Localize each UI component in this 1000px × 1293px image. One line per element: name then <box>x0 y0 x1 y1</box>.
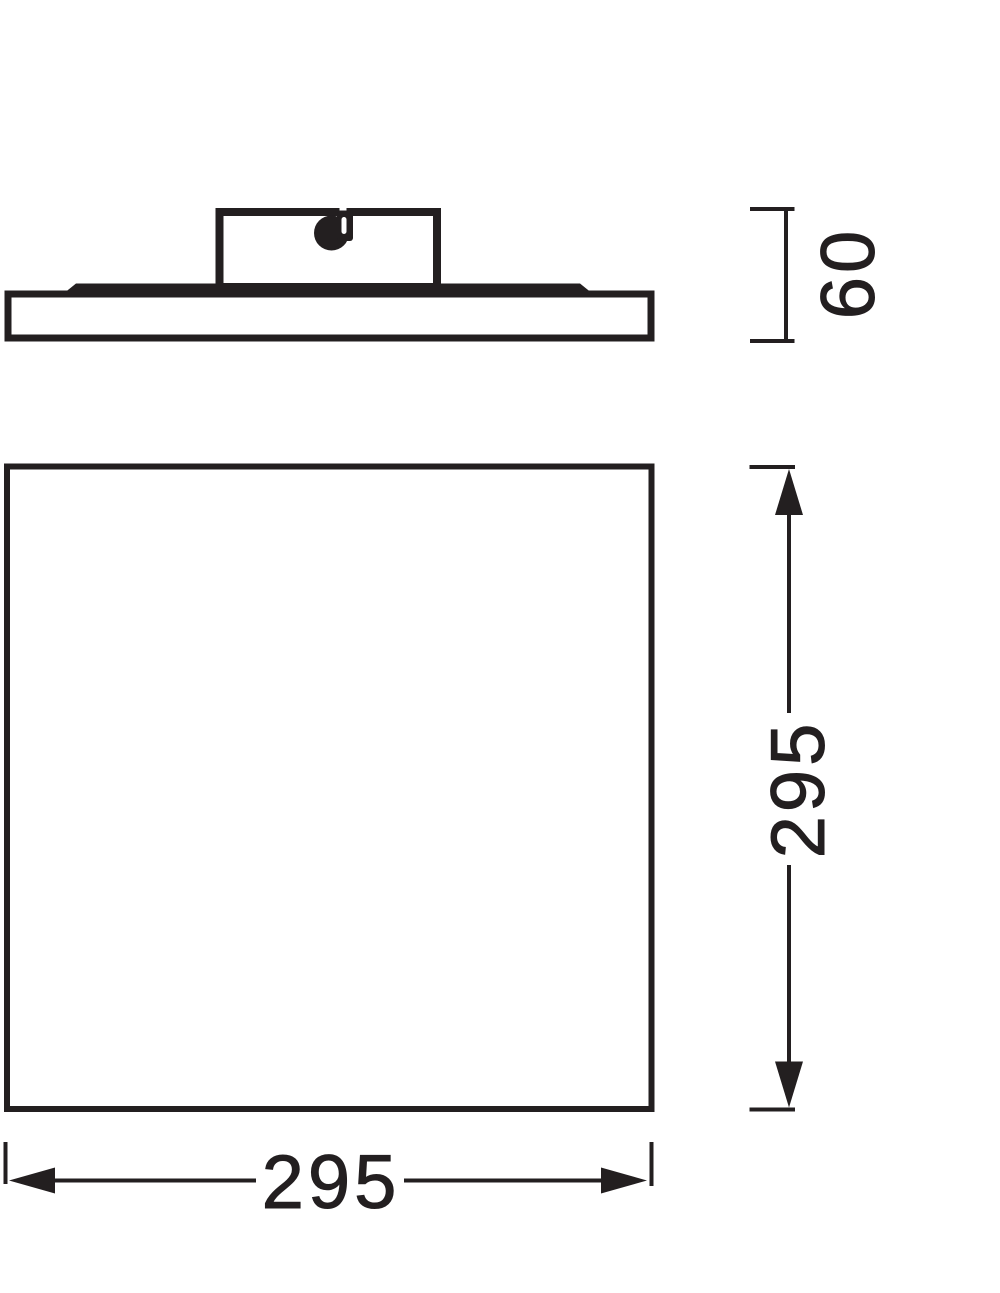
svg-text:60: 60 <box>806 227 891 320</box>
svg-text:295: 295 <box>756 720 841 859</box>
svg-text:295: 295 <box>262 1140 401 1225</box>
